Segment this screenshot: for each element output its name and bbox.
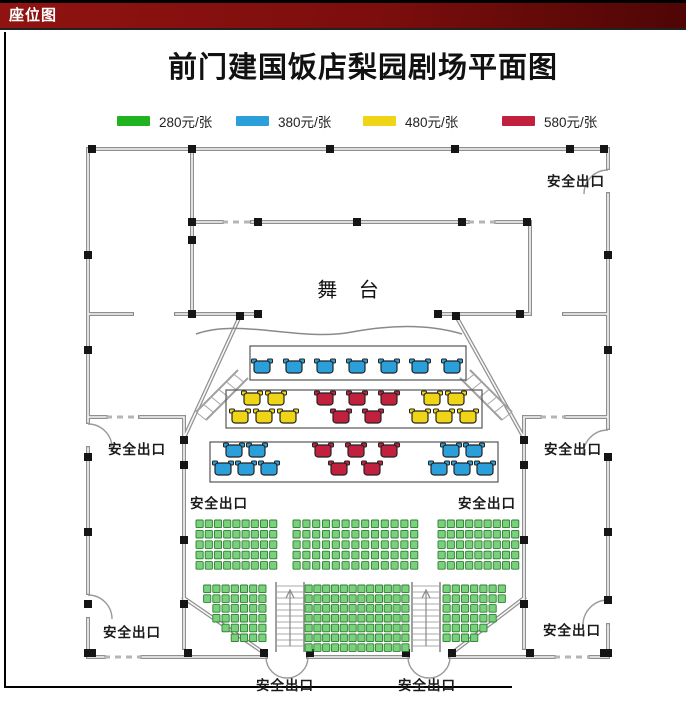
seat: [259, 605, 266, 613]
seat: [466, 551, 473, 559]
table-blue: [224, 443, 245, 457]
seat: [438, 541, 445, 549]
seat: [367, 605, 374, 613]
seat: [438, 562, 445, 570]
table-yellow: [410, 409, 431, 423]
table-yellow: [242, 391, 263, 405]
seat: [214, 530, 221, 538]
seat: [313, 520, 320, 528]
seat: [447, 551, 454, 559]
floor-plan: [0, 0, 686, 703]
seat: [367, 614, 374, 622]
seat: [250, 614, 257, 622]
seat: [340, 605, 347, 613]
column: [604, 251, 612, 259]
seat: [484, 530, 491, 538]
seat: [259, 634, 266, 642]
seat: [402, 614, 409, 622]
seat: [349, 595, 356, 603]
seat: [475, 530, 482, 538]
seat: [438, 530, 445, 538]
seat: [224, 520, 231, 528]
seat: [493, 562, 500, 570]
seat: [305, 624, 312, 632]
seat: [456, 562, 463, 570]
seat: [471, 605, 478, 613]
seat: [260, 530, 267, 538]
seat: [411, 551, 418, 559]
column: [84, 346, 92, 354]
seat: [466, 520, 473, 528]
seat: [250, 585, 257, 593]
column: [326, 145, 334, 153]
stage-front-edge: [196, 326, 462, 334]
column: [254, 218, 262, 226]
seat: [393, 614, 400, 622]
seat: [461, 605, 468, 613]
seat: [447, 541, 454, 549]
seat: [251, 520, 258, 528]
seat: [349, 614, 356, 622]
seat: [331, 644, 338, 652]
seat: [231, 595, 238, 603]
seat: [222, 595, 229, 603]
seat: [402, 644, 409, 652]
seat: [489, 585, 496, 593]
seat: [443, 605, 450, 613]
seat: [452, 634, 459, 642]
seat: [224, 530, 231, 538]
seat: [401, 520, 408, 528]
seat: [362, 530, 369, 538]
column: [523, 218, 531, 226]
seat: [475, 562, 482, 570]
seat: [362, 520, 369, 528]
seat: [322, 551, 329, 559]
seat: [384, 624, 391, 632]
seat: [484, 562, 491, 570]
table-blue: [252, 359, 273, 373]
seat: [314, 634, 321, 642]
seat: [381, 520, 388, 528]
seat: [323, 644, 330, 652]
seat: [196, 551, 203, 559]
seat: [213, 595, 220, 603]
column: [84, 600, 92, 608]
column: [88, 649, 96, 657]
table-blue: [315, 359, 336, 373]
column: [260, 649, 268, 657]
table-red: [347, 391, 368, 405]
seat: [260, 520, 267, 528]
seat: [342, 551, 349, 559]
seat: [340, 614, 347, 622]
seat: [375, 585, 382, 593]
seat: [358, 585, 365, 593]
column: [88, 145, 96, 153]
seat: [214, 562, 221, 570]
seat: [303, 541, 310, 549]
seat: [401, 562, 408, 570]
seat: [323, 614, 330, 622]
table-yellow: [434, 409, 455, 423]
seat: [250, 605, 257, 613]
seat: [362, 551, 369, 559]
seat: [381, 530, 388, 538]
column: [516, 310, 524, 318]
column: [188, 218, 196, 226]
seat: [367, 595, 374, 603]
seat: [205, 520, 212, 528]
column: [448, 649, 456, 657]
column: [451, 145, 459, 153]
seat: [305, 595, 312, 603]
seat: [384, 595, 391, 603]
seat: [196, 541, 203, 549]
seat: [240, 614, 247, 622]
seat: [391, 530, 398, 538]
seat: [224, 541, 231, 549]
seat: [204, 595, 211, 603]
seat: [438, 520, 445, 528]
seat: [475, 520, 482, 528]
seat: [270, 551, 277, 559]
seat: [332, 562, 339, 570]
seat: [358, 634, 365, 642]
seat: [233, 562, 240, 570]
column: [520, 600, 528, 608]
seat: [205, 551, 212, 559]
table-red: [315, 391, 336, 405]
seat: [384, 634, 391, 642]
seat: [452, 595, 459, 603]
seat: [270, 541, 277, 549]
column: [180, 461, 188, 469]
seat: [259, 624, 266, 632]
seat: [259, 614, 266, 622]
seat: [293, 541, 300, 549]
column: [604, 528, 612, 536]
exit-label: 安全出口: [544, 438, 602, 458]
seat: [493, 530, 500, 538]
table-blue: [247, 443, 268, 457]
seat: [402, 605, 409, 613]
seat: [452, 605, 459, 613]
seat: [323, 634, 330, 642]
seat: [393, 634, 400, 642]
seat: [502, 541, 509, 549]
seat: [512, 562, 519, 570]
seat: [240, 605, 247, 613]
seat: [411, 530, 418, 538]
seat: [314, 595, 321, 603]
seat: [222, 624, 229, 632]
exit-label: 安全出口: [458, 492, 516, 512]
column: [188, 310, 196, 318]
seat: [331, 595, 338, 603]
seat: [375, 624, 382, 632]
seat: [340, 585, 347, 593]
exit-label: 安全出口: [256, 674, 314, 694]
seat: [452, 624, 459, 632]
table-blue: [441, 443, 462, 457]
seat: [322, 520, 329, 528]
table-blue: [475, 461, 496, 475]
banquet-tables: [210, 346, 498, 482]
column: [353, 218, 361, 226]
seat: [260, 562, 267, 570]
seat: [471, 595, 478, 603]
seat: [493, 520, 500, 528]
column: [254, 310, 262, 318]
seat: [411, 520, 418, 528]
table-yellow: [422, 391, 443, 405]
seat-map-page: 座位图 前门建国饭店梨园剧场平面图 280元/张380元/张480元/张580元…: [0, 0, 686, 703]
seat: [480, 605, 487, 613]
seat: [251, 562, 258, 570]
seat: [371, 520, 378, 528]
seat: [314, 624, 321, 632]
seat: [233, 530, 240, 538]
seat: [411, 562, 418, 570]
seat: [443, 585, 450, 593]
column: [600, 649, 608, 657]
seat: [342, 562, 349, 570]
seat: [231, 614, 238, 622]
seat: [349, 634, 356, 642]
seat: [456, 551, 463, 559]
table-red: [331, 409, 352, 423]
seat: [240, 624, 247, 632]
seat: [196, 530, 203, 538]
seat: [484, 551, 491, 559]
seat: [205, 541, 212, 549]
seat: [293, 562, 300, 570]
seat: [352, 551, 359, 559]
seat: [512, 520, 519, 528]
seat: [323, 605, 330, 613]
table-blue: [284, 359, 305, 373]
seat: [391, 551, 398, 559]
table-blue: [236, 461, 257, 475]
seat: [250, 634, 257, 642]
seat: [512, 541, 519, 549]
seat: [480, 614, 487, 622]
seat: [340, 634, 347, 642]
seat: [251, 551, 258, 559]
column: [184, 649, 192, 657]
column: [180, 436, 188, 444]
seat: [367, 634, 374, 642]
seat: [331, 624, 338, 632]
table-blue: [452, 461, 473, 475]
seat: [331, 605, 338, 613]
seat: [461, 634, 468, 642]
table-red: [362, 461, 383, 475]
seat: [349, 585, 356, 593]
seat: [358, 644, 365, 652]
seat: [381, 541, 388, 549]
seat: [358, 624, 365, 632]
seat: [384, 644, 391, 652]
seat: [293, 530, 300, 538]
seat: [233, 520, 240, 528]
column: [566, 145, 574, 153]
seat: [242, 562, 249, 570]
seat: [313, 551, 320, 559]
table-yellow: [254, 409, 275, 423]
column: [526, 649, 534, 657]
table-yellow: [278, 409, 299, 423]
seat: [322, 562, 329, 570]
seat: [231, 585, 238, 593]
seat: [250, 624, 257, 632]
column: [600, 145, 608, 153]
seat: [242, 530, 249, 538]
table-yellow: [230, 409, 251, 423]
seat: [340, 644, 347, 652]
seat: [214, 520, 221, 528]
seat: [322, 541, 329, 549]
seat: [393, 585, 400, 593]
seat: [303, 562, 310, 570]
seat: [358, 614, 365, 622]
seat: [270, 520, 277, 528]
seat: [270, 530, 277, 538]
table-red: [313, 443, 334, 457]
seat: [362, 541, 369, 549]
seat: [401, 541, 408, 549]
seat: [259, 595, 266, 603]
seat: [401, 530, 408, 538]
seat: [371, 551, 378, 559]
column: [84, 453, 92, 461]
seat: [313, 541, 320, 549]
seat: [371, 530, 378, 538]
seat: [375, 605, 382, 613]
seat: [358, 605, 365, 613]
seat: [493, 551, 500, 559]
seat: [466, 562, 473, 570]
seat: [222, 614, 229, 622]
seat: [381, 562, 388, 570]
seat: [352, 530, 359, 538]
seat: [214, 551, 221, 559]
seat: [358, 595, 365, 603]
seat: [332, 541, 339, 549]
seat: [213, 605, 220, 613]
seat: [322, 530, 329, 538]
seat: [375, 634, 382, 642]
seat: [305, 585, 312, 593]
stage-label: 舞 台: [317, 274, 387, 303]
seat: [502, 551, 509, 559]
seat: [384, 605, 391, 613]
seat: [331, 614, 338, 622]
table-red: [346, 443, 367, 457]
column: [434, 310, 442, 318]
seat: [305, 634, 312, 642]
seat: [233, 551, 240, 559]
seat: [313, 562, 320, 570]
seat: [305, 614, 312, 622]
seat: [367, 585, 374, 593]
table-blue: [379, 359, 400, 373]
exit-label: 安全出口: [543, 619, 601, 639]
exit-label: 安全出口: [103, 621, 161, 641]
column: [520, 436, 528, 444]
column: [84, 251, 92, 259]
seat: [367, 624, 374, 632]
seat: [213, 585, 220, 593]
seat: [222, 585, 229, 593]
exit-label: 安全出口: [398, 674, 456, 694]
seat: [393, 595, 400, 603]
table-blue: [442, 359, 463, 373]
seat: [384, 614, 391, 622]
seat: [391, 520, 398, 528]
seat: [314, 605, 321, 613]
seat: [213, 614, 220, 622]
column: [452, 312, 460, 320]
seat: [498, 595, 505, 603]
seat: [391, 541, 398, 549]
seat: [461, 614, 468, 622]
seat: [224, 551, 231, 559]
seat: [367, 644, 374, 652]
seat: [456, 520, 463, 528]
seat: [402, 595, 409, 603]
table-blue: [464, 443, 485, 457]
seat: [461, 624, 468, 632]
exit-label: 安全出口: [108, 438, 166, 458]
seat: [393, 624, 400, 632]
seat: [401, 551, 408, 559]
table-blue: [410, 359, 431, 373]
seat: [342, 541, 349, 549]
seat: [231, 624, 238, 632]
table-red: [379, 391, 400, 405]
column: [236, 312, 244, 320]
seat: [375, 595, 382, 603]
seat: [475, 541, 482, 549]
seat: [447, 520, 454, 528]
seat: [205, 530, 212, 538]
column: [604, 346, 612, 354]
exit-label: 安全出口: [547, 170, 605, 190]
seat: [371, 562, 378, 570]
seat: [461, 595, 468, 603]
column: [520, 536, 528, 544]
seat: [502, 562, 509, 570]
seat: [340, 624, 347, 632]
seat: [332, 530, 339, 538]
seat: [443, 634, 450, 642]
column: [180, 600, 188, 608]
seat: [349, 624, 356, 632]
seat: [303, 530, 310, 538]
seat: [466, 541, 473, 549]
seat: [512, 551, 519, 559]
column: [458, 218, 466, 226]
seat: [231, 605, 238, 613]
seat: [204, 585, 211, 593]
exit-label: 安全出口: [190, 492, 248, 512]
table-red: [379, 443, 400, 457]
seat: [447, 530, 454, 538]
seat: [362, 562, 369, 570]
seat: [260, 551, 267, 559]
